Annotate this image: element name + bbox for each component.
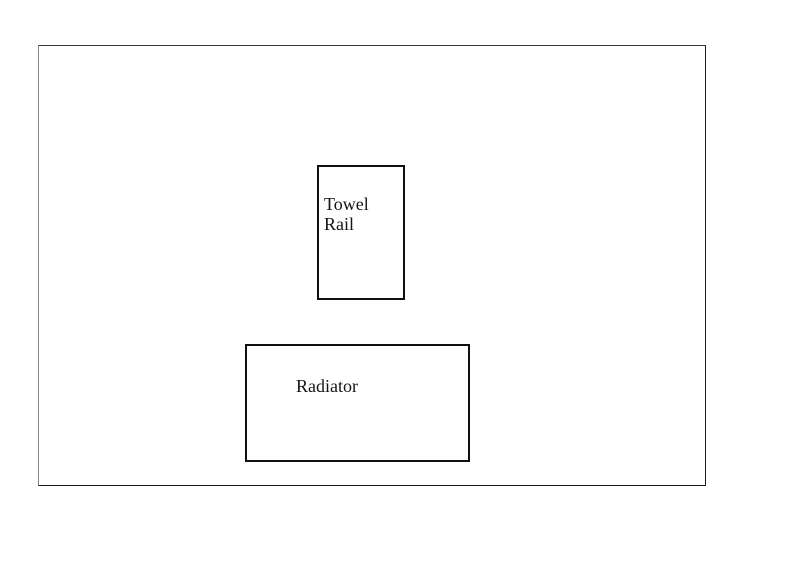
towel-rail-box: Towel Rail [317, 165, 405, 300]
radiator-label: Radiator [296, 376, 358, 396]
diagram-canvas: Towel Rail Radiator [0, 0, 800, 580]
radiator-box: Radiator [245, 344, 470, 462]
towel-rail-label: Towel Rail [324, 194, 386, 234]
